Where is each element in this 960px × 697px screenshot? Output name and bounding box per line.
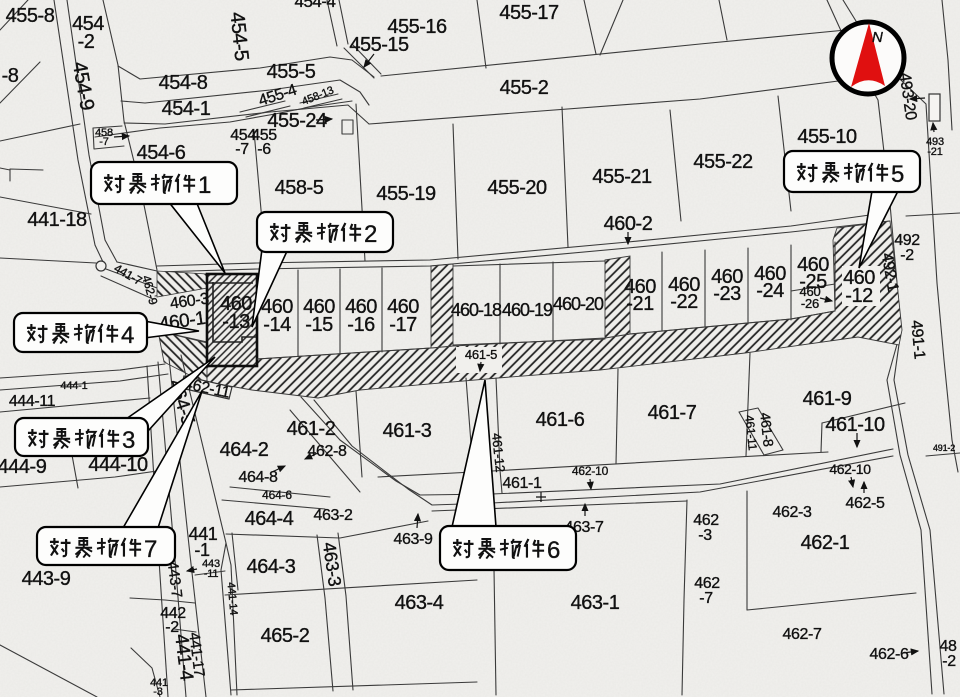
svg-text:-7: -7 [235, 141, 249, 158]
svg-text:444-9: 444-9 [0, 456, 47, 478]
svg-text:-23: -23 [713, 283, 741, 305]
svg-text:-14: -14 [263, 314, 291, 336]
svg-text:455-20: 455-20 [487, 177, 547, 199]
svg-text:441-18: 441-18 [27, 209, 87, 231]
svg-text:-6: -6 [257, 141, 271, 158]
svg-text:1: 1 [198, 172, 211, 199]
svg-text:455-5: 455-5 [267, 61, 316, 83]
svg-text:444-10: 444-10 [88, 454, 148, 476]
svg-text:-26: -26 [801, 296, 819, 311]
svg-text:464-2: 464-2 [220, 439, 269, 461]
svg-text:-15: -15 [305, 314, 333, 336]
svg-text:460-2: 460-2 [604, 213, 653, 235]
svg-text:458-5: 458-5 [275, 177, 324, 199]
svg-text:N: N [872, 29, 883, 46]
svg-text:-2: -2 [942, 653, 956, 670]
svg-text:-21: -21 [927, 146, 942, 158]
svg-text:444-11: 444-11 [9, 393, 56, 410]
svg-text:491-1: 491-1 [907, 319, 927, 360]
svg-text:455-10: 455-10 [797, 126, 857, 148]
svg-text:455-21: 455-21 [592, 166, 652, 188]
svg-text:-13: -13 [222, 311, 250, 333]
svg-text:-7: -7 [699, 590, 713, 607]
svg-text:462-10: 462-10 [572, 464, 609, 478]
svg-text:-24: -24 [756, 280, 784, 302]
svg-text:464-3: 464-3 [247, 556, 296, 578]
svg-text:-8: -8 [2, 65, 19, 87]
svg-text:460-19: 460-19 [502, 300, 553, 320]
svg-text:-1: -1 [194, 540, 210, 560]
svg-text:461-3: 461-3 [383, 420, 432, 442]
svg-text:444-1: 444-1 [60, 380, 87, 392]
svg-text:464-6: 464-6 [262, 488, 292, 502]
svg-text:7: 7 [144, 536, 157, 563]
svg-text:5: 5 [891, 161, 904, 188]
svg-text:-2: -2 [165, 619, 179, 636]
svg-text:463-1: 463-1 [571, 592, 620, 614]
svg-text:464-4: 464-4 [245, 508, 294, 530]
svg-text:461-10: 461-10 [825, 414, 885, 436]
svg-text:462-3: 462-3 [773, 504, 812, 521]
svg-text:462-1: 462-1 [801, 532, 850, 554]
svg-text:454-8: 454-8 [159, 72, 208, 94]
svg-text:455-8: 455-8 [6, 5, 55, 27]
svg-text:461-1: 461-1 [503, 475, 542, 492]
svg-text:455-19: 455-19 [376, 183, 436, 205]
svg-text:455-22: 455-22 [693, 151, 753, 173]
svg-text:463-4: 463-4 [395, 592, 444, 614]
svg-text:-2: -2 [900, 247, 914, 264]
svg-text:463-2: 463-2 [314, 507, 353, 524]
svg-text:-3: -3 [153, 686, 162, 697]
svg-text:461-9: 461-9 [803, 388, 852, 410]
svg-text:-11: -11 [204, 568, 219, 580]
svg-text:455-16: 455-16 [387, 16, 447, 38]
svg-text:455-2: 455-2 [500, 77, 549, 99]
svg-text:455-17: 455-17 [499, 2, 559, 24]
svg-text:3: 3 [122, 427, 135, 454]
svg-text:461-6: 461-6 [536, 409, 585, 431]
svg-text:6: 6 [547, 537, 560, 564]
svg-text:-21: -21 [626, 293, 654, 315]
svg-text:464-8: 464-8 [239, 469, 278, 486]
svg-text:460-20: 460-20 [553, 294, 604, 314]
svg-text:-3: -3 [698, 527, 712, 544]
svg-text:491-2: 491-2 [933, 443, 955, 453]
svg-text:-7: -7 [99, 136, 108, 148]
svg-text:454-4: 454-4 [295, 0, 336, 11]
svg-text:443-9: 443-9 [22, 568, 71, 590]
svg-text:-16: -16 [347, 314, 375, 336]
svg-text:462-8: 462-8 [308, 443, 347, 460]
svg-text:460-18: 460-18 [451, 300, 502, 320]
svg-text:4: 4 [121, 322, 134, 349]
svg-text:463-9: 463-9 [394, 531, 433, 548]
svg-text:462-6: 462-6 [870, 646, 909, 663]
svg-text:462-10: 462-10 [829, 461, 871, 477]
svg-text:454-1: 454-1 [162, 98, 211, 120]
svg-text:461-5: 461-5 [465, 347, 497, 362]
svg-text:462-5: 462-5 [846, 495, 885, 512]
svg-text:461-7: 461-7 [648, 402, 697, 424]
svg-text:465-2: 465-2 [261, 625, 310, 647]
svg-text:454-6: 454-6 [137, 142, 186, 164]
svg-text:2: 2 [364, 221, 377, 248]
svg-text:462-7: 462-7 [783, 626, 822, 643]
svg-text:-17: -17 [389, 314, 417, 336]
svg-text:461-2: 461-2 [287, 418, 336, 440]
svg-text:-22: -22 [670, 291, 698, 313]
svg-text:-12: -12 [845, 285, 873, 307]
svg-text:-2: -2 [78, 31, 95, 53]
